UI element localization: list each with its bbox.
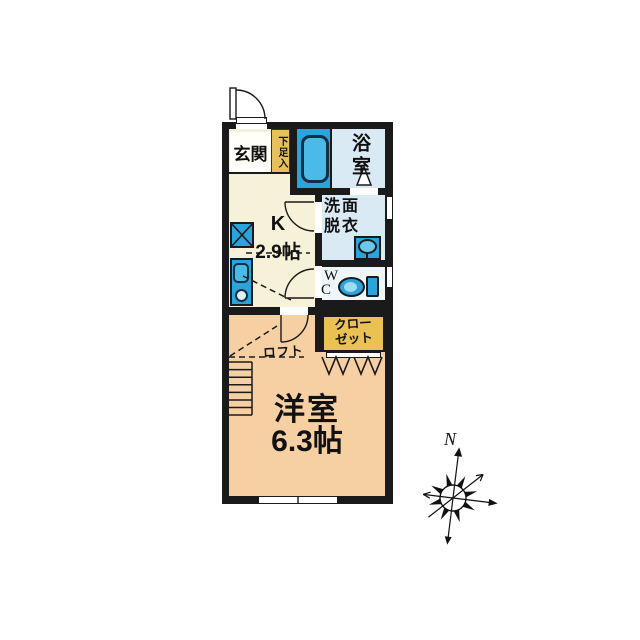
window-washroom (386, 196, 393, 220)
door-opening-western (280, 307, 308, 315)
wall-washroom-wc (315, 260, 385, 267)
label-kitchen-type: K (243, 213, 313, 236)
door-opening-washroom (315, 202, 322, 233)
label-washroom-line1: 洗面 (324, 197, 360, 217)
label-washroom: 洗面 脱衣 (324, 197, 360, 237)
label-kitchen-size: 2.9帖 (240, 237, 316, 264)
toilet-tank (366, 276, 379, 297)
door-opening-bathroom (350, 188, 378, 195)
compass-rose-icon (417, 444, 503, 550)
label-bathroom: 浴室 (346, 133, 373, 187)
kitchen-burner (235, 289, 248, 302)
washbasin-bowl (358, 239, 377, 254)
label-loft: ロフト (263, 340, 304, 361)
kitchen-sink (233, 263, 249, 283)
toilet-bowl-inner (344, 282, 357, 292)
label-wc-c: C (321, 282, 331, 299)
bathtub (301, 135, 329, 183)
entrance-door-icon (230, 88, 265, 119)
closet-track (326, 352, 381, 358)
label-compass-north: N (444, 429, 456, 450)
label-western-room: 洋室 (229, 394, 385, 425)
label-washroom-line2: 脱衣 (324, 217, 360, 237)
label-genkan: 玄関 (230, 132, 271, 172)
entrance-threshold (236, 117, 267, 124)
floorplan-canvas: 玄関 下足入 浴室 洗面 脱衣 W C K 2.9帖 クロー ゼット ロフト 洋… (0, 0, 640, 640)
window-south (258, 496, 338, 504)
label-shoe-storage: 下足入 (272, 131, 289, 173)
window-wc (386, 266, 393, 288)
label-closet: クロー ゼット (321, 315, 386, 349)
label-western-size: 6.3帖 (229, 427, 385, 457)
wall-bath-left (290, 122, 297, 195)
